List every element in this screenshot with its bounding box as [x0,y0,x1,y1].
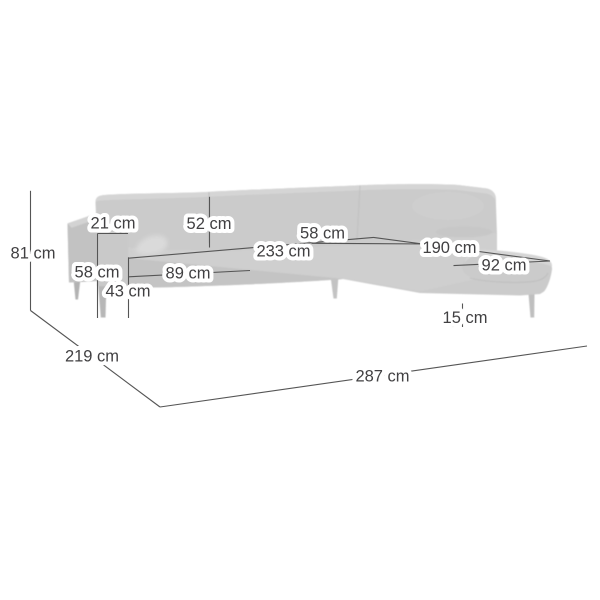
svg-text:190 cm: 190 cm [422,239,476,257]
svg-text:43 cm: 43 cm [106,283,151,301]
svg-text:81 cm: 81 cm [11,245,56,263]
svg-text:233 cm: 233 cm [256,243,310,261]
svg-text:15 cm: 15 cm [443,309,488,327]
svg-text:52 cm: 52 cm [187,215,232,233]
svg-text:58 cm: 58 cm [75,264,120,282]
svg-text:89 cm: 89 cm [166,265,211,283]
svg-text:21 cm: 21 cm [91,215,136,233]
svg-text:219 cm: 219 cm [65,348,119,366]
svg-text:92 cm: 92 cm [482,257,527,275]
svg-text:287 cm: 287 cm [355,368,409,386]
svg-text:58 cm: 58 cm [300,225,345,243]
